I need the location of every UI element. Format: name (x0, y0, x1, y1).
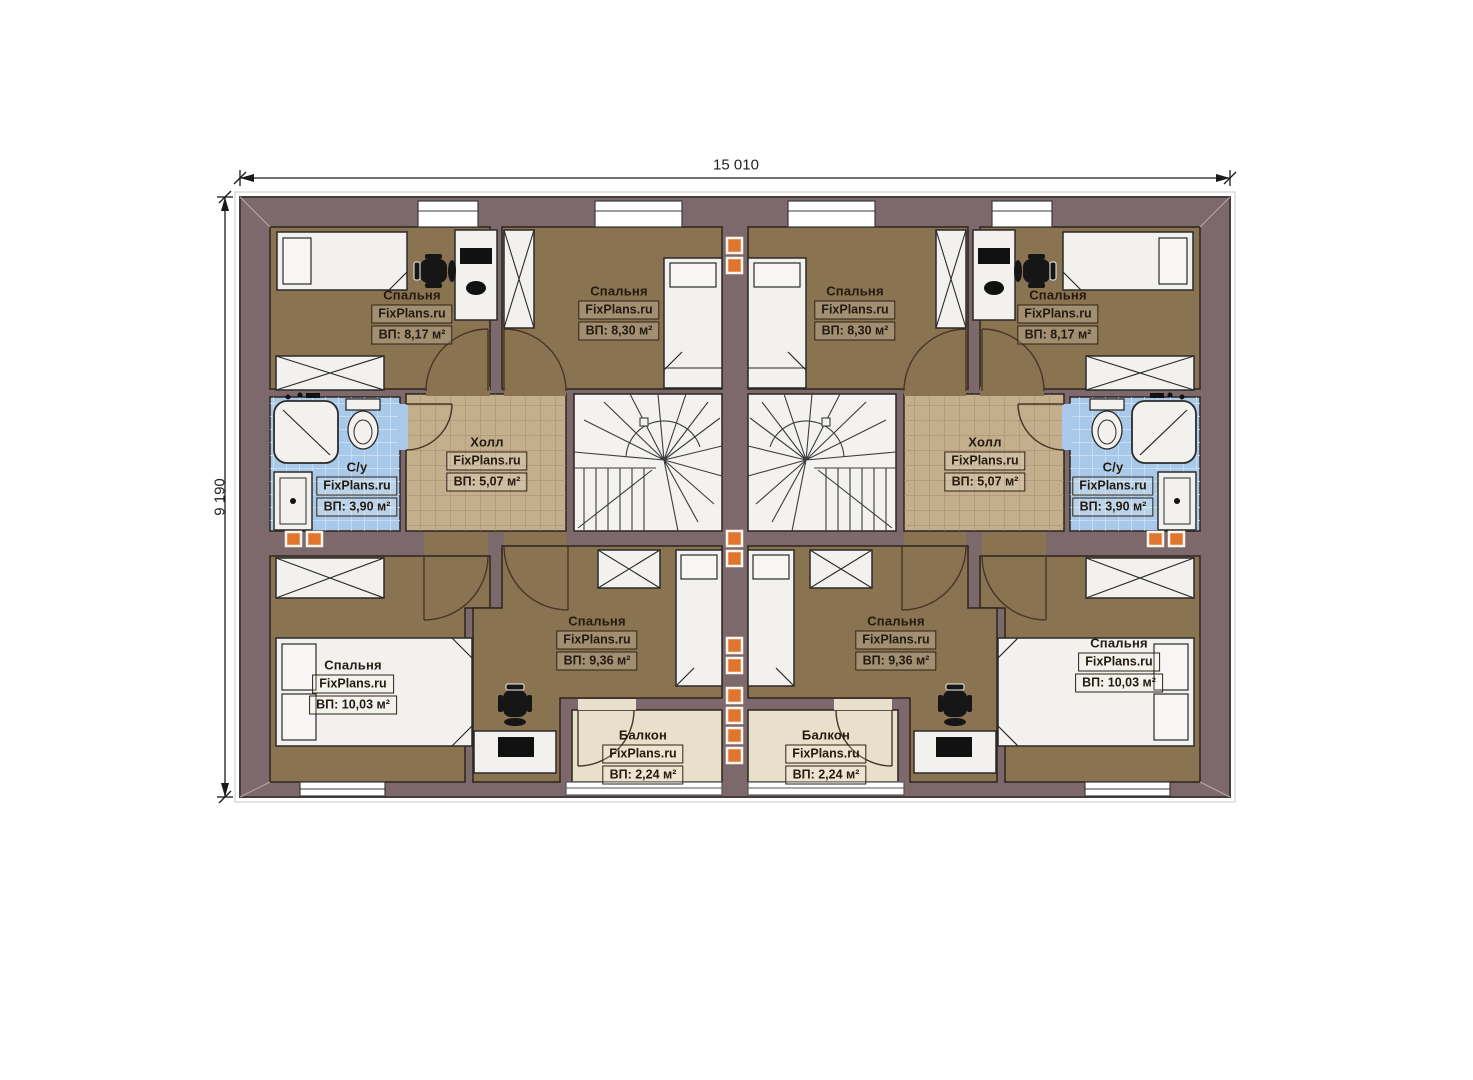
watermark-box: FixPlans.ru (814, 301, 895, 320)
watermark-box: FixPlans.ru (1072, 477, 1153, 496)
room-label-bedroom-mid-left: Спальня FixPlans.ru ВП: 9,36 м² (556, 614, 637, 671)
area-box: ВП: 8,17 м² (372, 326, 453, 345)
room-name: Спальня (568, 614, 626, 629)
room-label-bedroom-mid-right: Спальня FixPlans.ru ВП: 9,36 м² (855, 614, 936, 671)
room-label-bedroom-tm-left: Спальня FixPlans.ru ВП: 8,30 м² (578, 284, 659, 341)
watermark-box: FixPlans.ru (785, 745, 866, 764)
area-box: ВП: 10,03 м² (309, 696, 397, 715)
room-name: С/у (347, 460, 368, 475)
area-box: ВП: 5,07 м² (945, 473, 1026, 492)
dimension-height-label: 9 190 (212, 478, 229, 516)
area-box: ВП: 9,36 м² (856, 652, 937, 671)
room-label-balcony-right: Балкон FixPlans.ru ВП: 2,24 м² (785, 728, 866, 785)
area-box: ВП: 2,24 м² (786, 766, 867, 785)
watermark-box: FixPlans.ru (944, 452, 1025, 471)
room-name: Спальня (383, 288, 441, 303)
room-name: Балкон (619, 728, 667, 743)
floor-plan-canvas: 15 010 9 190 Спальня FixPlans.ru ВП: 8,1… (0, 0, 1473, 1080)
area-box: ВП: 9,36 м² (557, 652, 638, 671)
room-name: Спальня (1029, 288, 1087, 303)
room-label-bathroom-left: С/у FixPlans.ru ВП: 3,90 м² (316, 460, 397, 517)
room-name: Спальня (590, 284, 648, 299)
watermark-box: FixPlans.ru (855, 631, 936, 650)
room-name: Холл (470, 435, 503, 450)
room-name: Спальня (1090, 636, 1148, 651)
room-name: Спальня (867, 614, 925, 629)
room-label-hall-right: Холл FixPlans.ru ВП: 5,07 м² (944, 435, 1025, 492)
area-box: ВП: 8,30 м² (579, 322, 660, 341)
watermark-box: FixPlans.ru (371, 305, 452, 324)
area-box: ВП: 3,90 м² (1073, 498, 1154, 517)
room-label-bedroom-tm-right: Спальня FixPlans.ru ВП: 8,30 м² (814, 284, 895, 341)
room-name: Холл (968, 435, 1001, 450)
room-name: Спальня (324, 658, 382, 673)
room-label-bathroom-right: С/у FixPlans.ru ВП: 3,90 м² (1072, 460, 1153, 517)
watermark-box: FixPlans.ru (1078, 653, 1159, 672)
area-box: ВП: 8,30 м² (815, 322, 896, 341)
area-box: ВП: 5,07 м² (447, 473, 528, 492)
watermark-box: FixPlans.ru (602, 745, 683, 764)
room-name: С/у (1103, 460, 1124, 475)
room-label-bedroom-tr-right: Спальня FixPlans.ru ВП: 8,17 м² (1017, 288, 1098, 345)
watermark-box: FixPlans.ru (556, 631, 637, 650)
watermark-box: FixPlans.ru (316, 477, 397, 496)
dimension-width-label: 15 010 (713, 157, 759, 174)
area-box: ВП: 3,90 м² (317, 498, 398, 517)
room-label-bedroom-tl-left: Спальня FixPlans.ru ВП: 8,17 м² (371, 288, 452, 345)
room-label-balcony-left: Балкон FixPlans.ru ВП: 2,24 м² (602, 728, 683, 785)
watermark-box: FixPlans.ru (312, 675, 393, 694)
room-label-hall-left: Холл FixPlans.ru ВП: 5,07 м² (446, 435, 527, 492)
room-label-bedroom-large-right: Спальня FixPlans.ru ВП: 10,03 м² (1075, 636, 1163, 693)
room-label-bedroom-large-left: Спальня FixPlans.ru ВП: 10,03 м² (309, 658, 397, 715)
area-box: ВП: 10,03 м² (1075, 674, 1163, 693)
area-box: ВП: 2,24 м² (603, 766, 684, 785)
watermark-box: FixPlans.ru (578, 301, 659, 320)
area-box: ВП: 8,17 м² (1018, 326, 1099, 345)
room-name: Балкон (802, 728, 850, 743)
watermark-box: FixPlans.ru (1017, 305, 1098, 324)
watermark-box: FixPlans.ru (446, 452, 527, 471)
room-name: Спальня (826, 284, 884, 299)
